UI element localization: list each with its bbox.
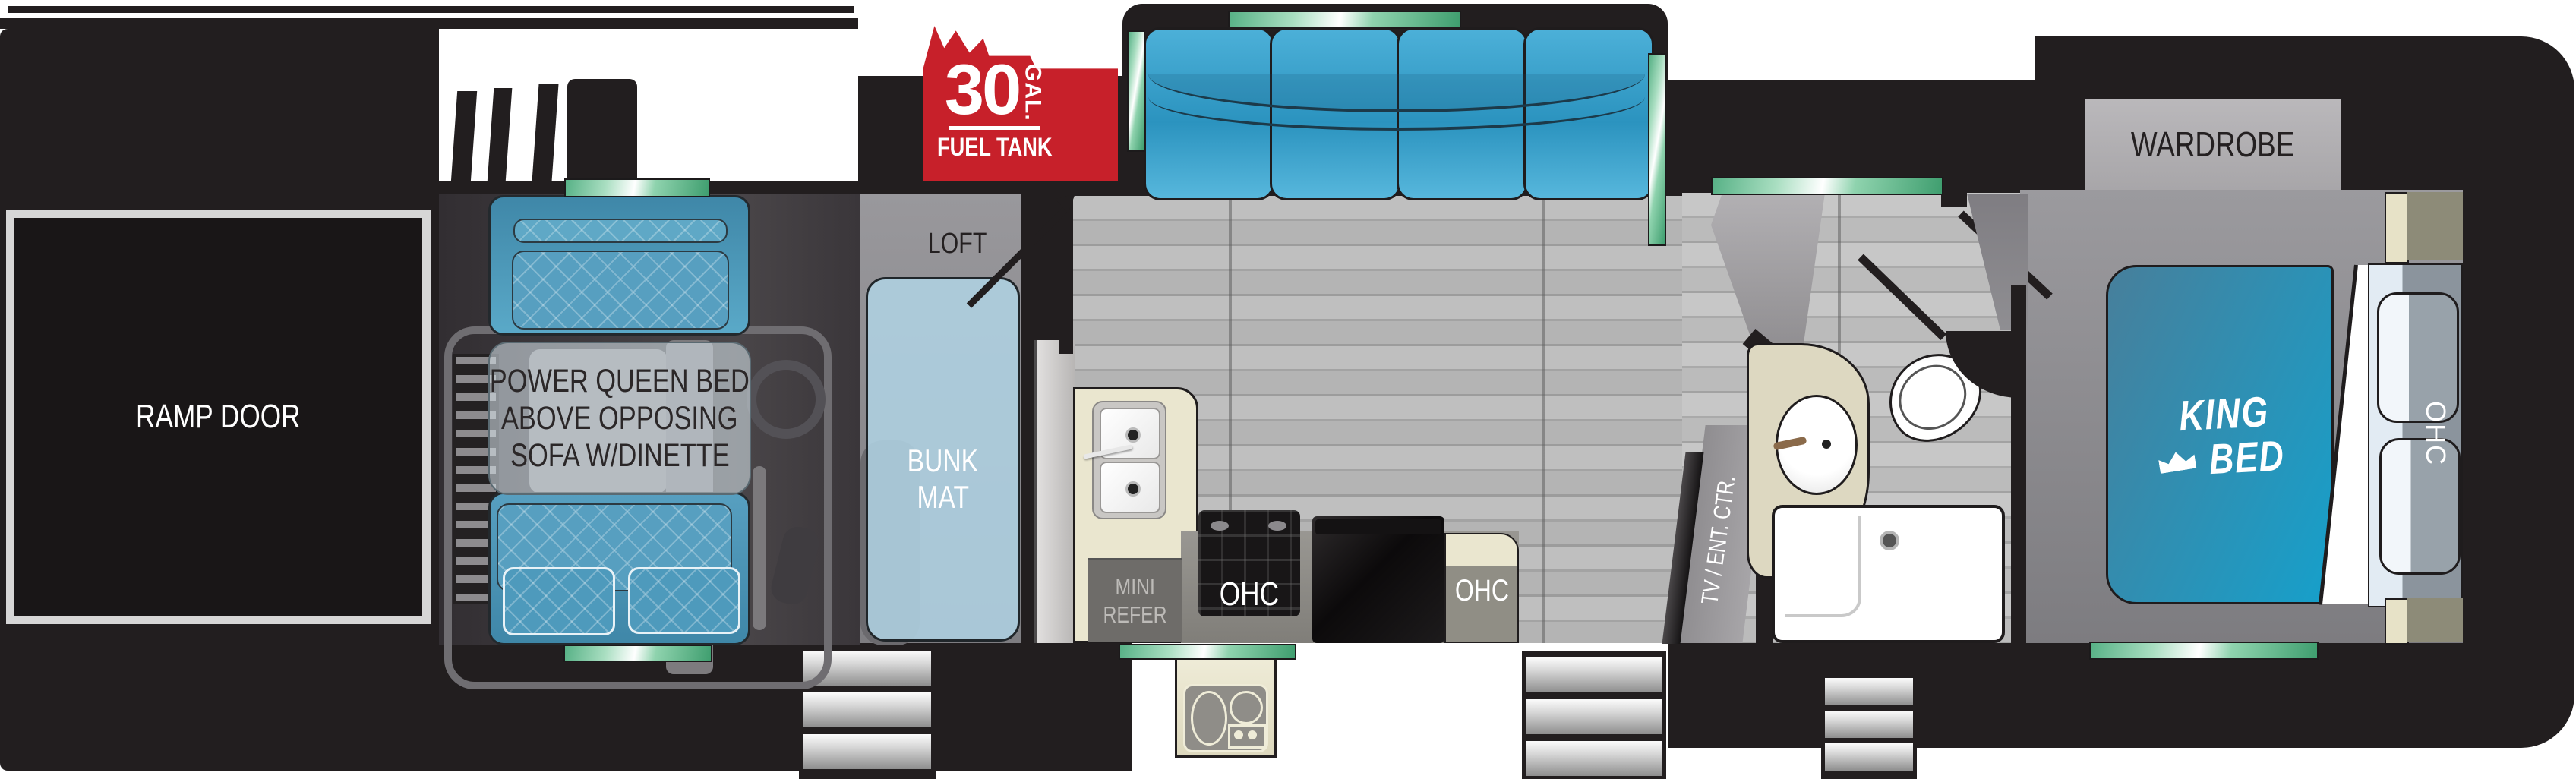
outside-kitchen [1175, 654, 1277, 758]
nightstand-bottom [2385, 598, 2409, 645]
nightstand-bottom-shadow [2407, 598, 2463, 642]
wardrobe: WARDROBE [2085, 99, 2341, 190]
steering-wheel-icon [747, 360, 826, 439]
opposing-sofa-top [488, 195, 750, 336]
floorplan-canvas: WARDROBE 30 GAL. FUEL TANK RAMP DOOR [0, 0, 2576, 782]
bed-label: BED [2208, 430, 2286, 484]
step-tread [1526, 657, 1662, 692]
roof-vent-bar-4 [567, 79, 637, 182]
opposing-sofa-bottom [488, 492, 750, 645]
kitchen-window-bottom [1119, 644, 1296, 660]
roof-rail-top [8, 6, 854, 13]
loft-kitchen-wall [1021, 194, 1034, 643]
garage-window-bottom [563, 645, 712, 662]
bath-bedroom-wall [2011, 285, 2026, 643]
garage-note-line1: POWER QUEEN BED [490, 363, 750, 400]
bunk-label-line1: BUNK [908, 443, 978, 479]
outside-cooktop [1183, 684, 1268, 752]
ramp-door-label: RAMP DOOR [136, 398, 300, 436]
step-tread [1526, 741, 1662, 776]
nightstand-top [2385, 192, 2409, 263]
crown-icon [2158, 448, 2196, 473]
ohc-bedroom-label: OHC [2420, 401, 2451, 466]
dinette-seat-right [628, 567, 740, 634]
fridge-handle [1315, 519, 1441, 534]
kitchen-sink [1092, 401, 1166, 519]
overhead-cabinet: OHC [1444, 533, 1519, 643]
queen-bed-overlay: POWER QUEEN BED ABOVE OPPOSING SOFA W/DI… [488, 342, 751, 495]
mini-fridge-label-line2: REFER [1103, 601, 1167, 629]
slideout-window-top [1228, 11, 1461, 29]
knob-icon [1248, 730, 1257, 739]
sofa-top-cushion-large [512, 251, 729, 330]
main-entry-steps [1522, 651, 1666, 779]
step-tread [803, 692, 931, 727]
slideout-sofa [1144, 27, 1649, 196]
range-cooktop: OHC [1198, 510, 1300, 616]
step-tread [1825, 743, 1913, 771]
entry-window-top [1711, 177, 1943, 195]
slideout-window-left [1127, 30, 1145, 152]
drain-icon [1125, 481, 1141, 497]
garage-note-line3: SOFA W/DINETTE [510, 437, 730, 475]
bedroom-window-bottom [2089, 642, 2319, 660]
fuel-divider [949, 126, 1040, 130]
step-tread [1825, 711, 1913, 738]
loft-label-wrap: LOFT [908, 228, 1007, 260]
wardrobe-label: WARDROBE [2131, 124, 2294, 165]
king-bed-logo: KING BED [2139, 384, 2311, 487]
fuel-capacity-value: 30 [945, 59, 1020, 120]
cooktop-knob-panel [1228, 724, 1266, 749]
cabinet-top-face [1446, 534, 1517, 566]
bedroom-entry-wall-stub [1941, 182, 1967, 207]
kitchen-tall-cabinet [1034, 340, 1075, 643]
mini-fridge: MINI REFER [1088, 558, 1182, 642]
step-tread [1825, 678, 1913, 705]
drain-icon [1822, 440, 1831, 449]
bath-sink [1776, 395, 1858, 495]
counter-corner-stub [1059, 339, 1073, 354]
drain-icon [1125, 427, 1141, 443]
loft-label: LOFT [928, 228, 987, 260]
bath-faucet-icon [1773, 437, 1807, 451]
ohc-range-label: OHC [1220, 575, 1279, 613]
slideout-window-right [1648, 53, 1666, 246]
bedroom-entry-steps [1821, 673, 1917, 779]
ohc-bedroom-label-wrap: OHC [2420, 401, 2451, 470]
burner-cap-icon [1268, 521, 1286, 531]
ohc-cabinet-label: OHC [1454, 574, 1508, 608]
garage-window-top [564, 178, 710, 197]
burner-cap-icon [1211, 521, 1229, 531]
step-tread [803, 734, 931, 769]
shower [1772, 505, 2005, 643]
knob-icon [1234, 730, 1243, 739]
roof-rail-bottom [0, 18, 858, 29]
mini-fridge-label-line1: MINI [1116, 572, 1155, 601]
vehicle-rollbar [753, 466, 766, 630]
bunk-mat: BUNK MAT [866, 277, 1020, 642]
burner-large-icon [1191, 691, 1227, 746]
ramp-door: RAMP DOOR [6, 210, 431, 624]
sink-basin-bottom [1100, 462, 1160, 513]
step-tread [1526, 699, 1662, 734]
sofa-top-cushion-small [513, 219, 728, 243]
bunk-label-line2: MAT [917, 479, 968, 516]
refrigerator [1312, 516, 1444, 643]
shower-curb-line [1785, 516, 1861, 617]
drain-icon [1880, 531, 1899, 550]
fuel-tank-label: FUEL TANK [937, 133, 1053, 162]
garage-note-line2: ABOVE OPPOSING [501, 400, 738, 437]
nightstand-top-shadow [2407, 192, 2463, 260]
burner-small-icon [1230, 691, 1263, 724]
fuel-capacity-unit: GAL. [1019, 64, 1045, 121]
fuel-tank-badge: 30 GAL. FUEL TANK [923, 23, 1118, 181]
dinette-seat-left [503, 567, 615, 635]
